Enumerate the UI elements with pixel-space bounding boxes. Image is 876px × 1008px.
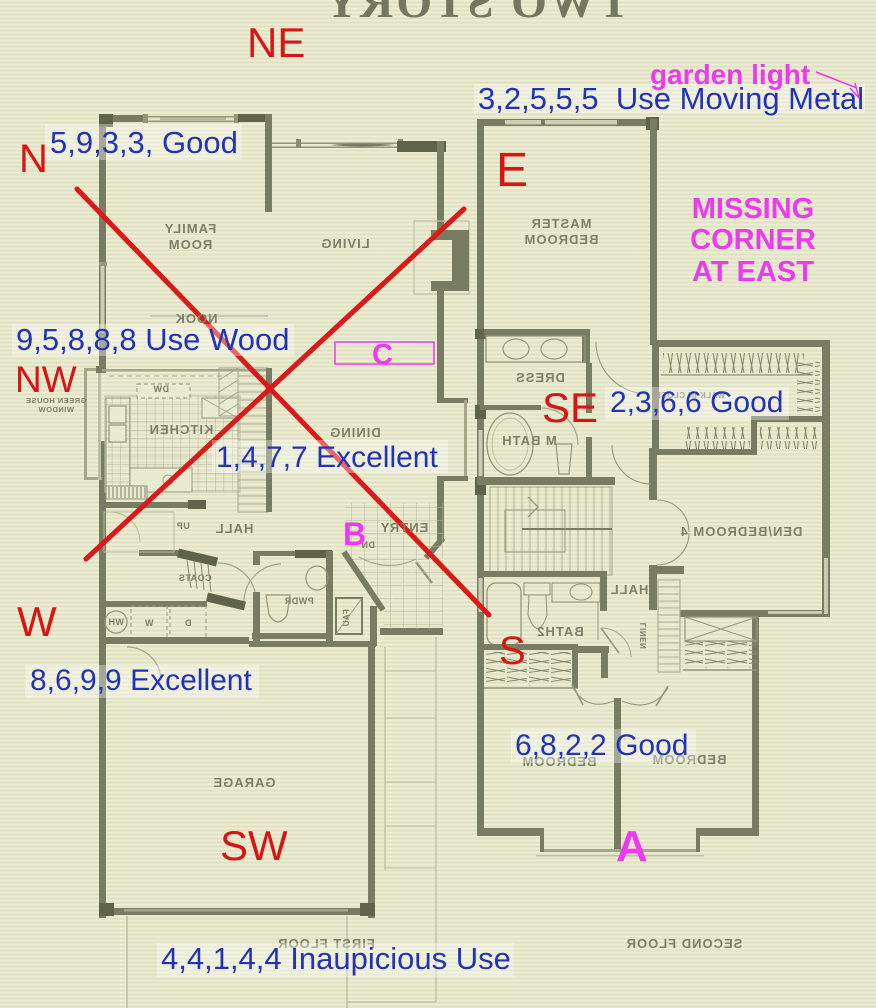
svg-text:BEDROOM: BEDROOM	[524, 232, 599, 247]
svg-text:LIVING: LIVING	[320, 236, 369, 251]
svg-text:DRESS: DRESS	[515, 370, 565, 385]
svg-text:garden light: garden light	[650, 59, 810, 90]
svg-text:FAU: FAU	[342, 609, 351, 627]
svg-text:KITCHEN: KITCHEN	[149, 422, 214, 437]
svg-text:SW: SW	[220, 822, 288, 869]
svg-text:D: D	[185, 618, 192, 628]
svg-text:2,3,6,6 Good: 2,3,6,6 Good	[610, 386, 783, 419]
svg-text:W: W	[17, 598, 57, 645]
svg-text:MISSING: MISSING	[692, 193, 814, 225]
svg-text:MASTER: MASTER	[531, 216, 592, 231]
svg-text:C: C	[372, 339, 393, 371]
svg-text:DW: DW	[153, 384, 169, 394]
svg-text:DEN/BEDROOM 4: DEN/BEDROOM 4	[680, 524, 803, 539]
svg-text:9,5,8,8,8 Use Wood: 9,5,8,8,8 Use Wood	[16, 322, 289, 357]
svg-text:AT EAST: AT EAST	[692, 256, 814, 288]
svg-text:TWO STORY: TWO STORY	[323, 0, 630, 27]
svg-text:E: E	[496, 144, 528, 197]
svg-text:5,9,3,3, Good: 5,9,3,3, Good	[50, 125, 238, 160]
svg-text:WH: WH	[108, 617, 124, 627]
svg-text:GARAGE: GARAGE	[212, 775, 275, 790]
svg-text:M BATH: M BATH	[501, 433, 557, 448]
svg-text:SE: SE	[542, 384, 598, 431]
svg-text:FAMILY: FAMILY	[164, 221, 216, 236]
svg-text:W: W	[145, 618, 154, 628]
svg-text:UP: UP	[176, 521, 190, 531]
svg-text:S: S	[499, 629, 526, 673]
svg-text:SECOND FLOOR: SECOND FLOOR	[626, 936, 743, 951]
svg-text:HALL: HALL	[215, 521, 254, 536]
svg-text:ENTRY: ENTRY	[380, 520, 429, 535]
svg-text:1,4,7,7 Excellent: 1,4,7,7 Excellent	[216, 441, 438, 474]
svg-text:PWDR: PWDR	[284, 596, 314, 606]
svg-text:HALL: HALL	[610, 582, 649, 597]
svg-text:4,4,1,4,4 Inaupicious Use: 4,4,1,4,4 Inaupicious Use	[161, 941, 511, 976]
svg-text:NE: NE	[247, 19, 305, 66]
svg-text:NW: NW	[15, 359, 77, 400]
svg-text:WINDOW: WINDOW	[38, 405, 74, 414]
svg-text:ROOM: ROOM	[168, 237, 212, 252]
svg-text:CORNER: CORNER	[690, 224, 816, 256]
svg-text:LINEN: LINEN	[639, 623, 648, 650]
svg-text:A: A	[616, 822, 648, 871]
svg-text:B: B	[343, 516, 366, 552]
svg-text:N: N	[19, 137, 48, 181]
svg-text:BATH2: BATH2	[536, 624, 583, 639]
svg-text:DINING: DINING	[329, 425, 381, 440]
svg-text:6,8,2,2 Good: 6,8,2,2 Good	[515, 729, 688, 762]
svg-text:COATS: COATS	[178, 573, 211, 583]
svg-text:8,6,9,9 Excellent: 8,6,9,9 Excellent	[30, 664, 252, 697]
